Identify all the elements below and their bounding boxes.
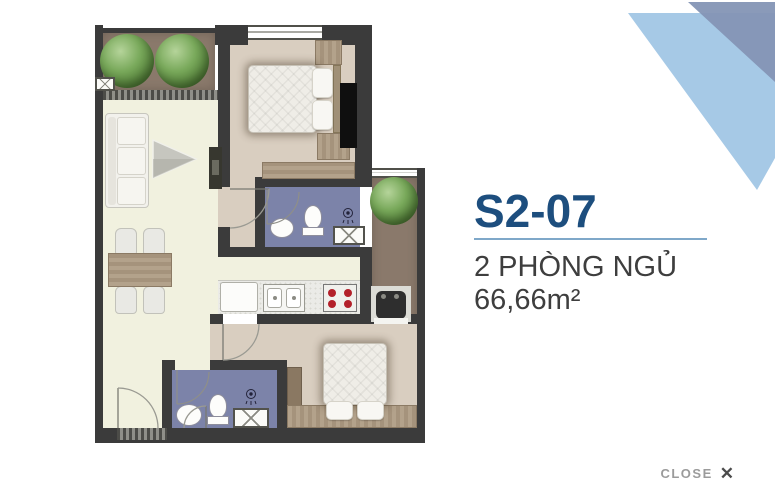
plan-symbols <box>95 20 425 445</box>
area-label: 66,66m² <box>474 284 580 317</box>
floor-plan <box>95 20 425 445</box>
entrance-door-icon <box>118 388 206 428</box>
close-label: CLOSE <box>660 466 712 481</box>
bedroom-2-door-icon <box>223 324 259 360</box>
shower-icon <box>246 390 256 406</box>
bedroom-1-door-icon <box>230 189 269 228</box>
shower-icon <box>343 209 353 225</box>
close-button[interactable]: CLOSE ✕ <box>660 465 734 482</box>
rug-triangle-icon <box>153 140 196 178</box>
unit-code-title: S2-07 <box>474 184 597 238</box>
bathroom-1-door-icon <box>267 190 299 224</box>
title-divider <box>474 238 707 240</box>
bathroom-2-door-icon <box>177 370 209 404</box>
unit-detail-popup: S2-07 2 PHÒNG NGỦ 66,66m² CLOSE ✕ <box>0 0 775 500</box>
corner-decoration <box>610 0 775 200</box>
bedrooms-label: 2 PHÒNG NGỦ <box>474 251 677 284</box>
close-icon: ✕ <box>720 465 734 482</box>
